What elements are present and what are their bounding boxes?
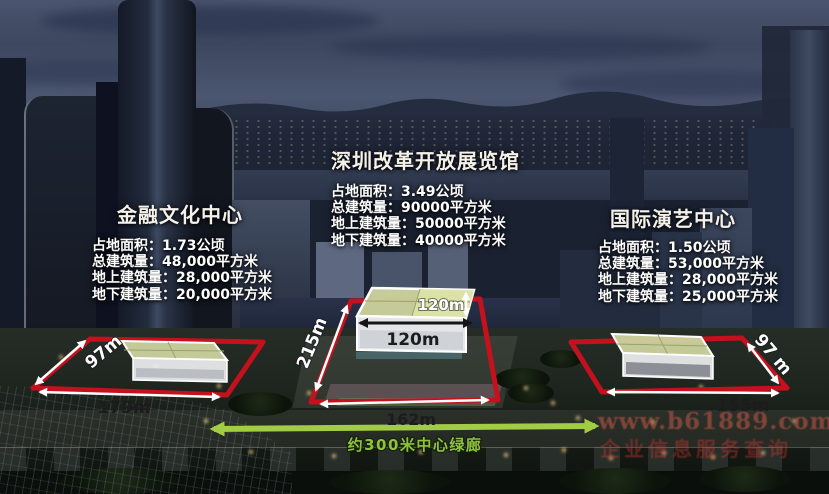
dim-label-left-front: 179m: [97, 398, 150, 418]
project-stats: 占地面积：3.49公顷 总建筑量：90000平方米 地上建筑量：50000平方米…: [331, 184, 520, 249]
project-stats: 占地面积：1.50公顷 总建筑量：53,000平方米 地上建筑量：28,000平…: [598, 240, 778, 305]
rendering-canvas: 97m 179m 215m 120m 120m 162m 97 m 155m 约…: [0, 0, 829, 494]
stat-line: 地上建筑量：28,000平方米: [598, 272, 778, 288]
proposed-building-right: [612, 334, 713, 379]
dim-label-building-depth: 120m: [418, 296, 465, 314]
project-info-financial-culture-center: 金融文化中心 占地面积：1.73公顷 总建筑量：48,000平方米 地上建筑量：…: [92, 204, 272, 303]
stat-line: 占地面积：3.49公顷: [331, 184, 520, 200]
dimension-arrow-left-side: [36, 341, 85, 384]
proposed-building-left: [122, 341, 227, 382]
dim-label-center-front: 162m: [386, 410, 436, 429]
project-info-performing-arts-center: 国际演艺中心 占地面积：1.50公顷 总建筑量：53,000平方米 地上建筑量：…: [598, 208, 778, 305]
green-corridor-label: 约300米中心绿廊: [348, 436, 483, 454]
stat-line: 地上建筑量：28,000平方米: [92, 270, 272, 286]
project-title: 国际演艺中心: [610, 208, 778, 230]
stat-line: 总建筑量：90000平方米: [331, 200, 520, 216]
stat-line: 地下建筑量：40000平方米: [331, 233, 520, 249]
dim-label-building-width: 120m: [386, 330, 439, 350]
stat-line: 占地面积：1.50公顷: [598, 240, 778, 256]
stat-line: 地上建筑量：50000平方米: [331, 216, 520, 232]
stat-line: 总建筑量：53,000平方米: [598, 256, 778, 272]
project-title: 深圳改革开放展览馆: [331, 150, 520, 172]
stat-line: 地下建筑量：20,000平方米: [92, 287, 272, 303]
stat-line: 占地面积：1.73公顷: [92, 238, 272, 254]
project-info-reform-exhibition-hall: 深圳改革开放展览馆 占地面积：3.49公顷 总建筑量：90000平方米 地上建筑…: [331, 150, 520, 249]
project-stats: 占地面积：1.73公顷 总建筑量：48,000平方米 地上建筑量：28,000平…: [92, 238, 272, 303]
project-title: 金融文化中心: [117, 204, 272, 226]
stat-line: 总建筑量：48,000平方米: [92, 254, 272, 270]
stat-line: 地下建筑量：25,000平方米: [598, 289, 778, 305]
dimension-arrow-right-front: [608, 392, 778, 393]
dim-label-right-front: 155m: [716, 396, 769, 416]
